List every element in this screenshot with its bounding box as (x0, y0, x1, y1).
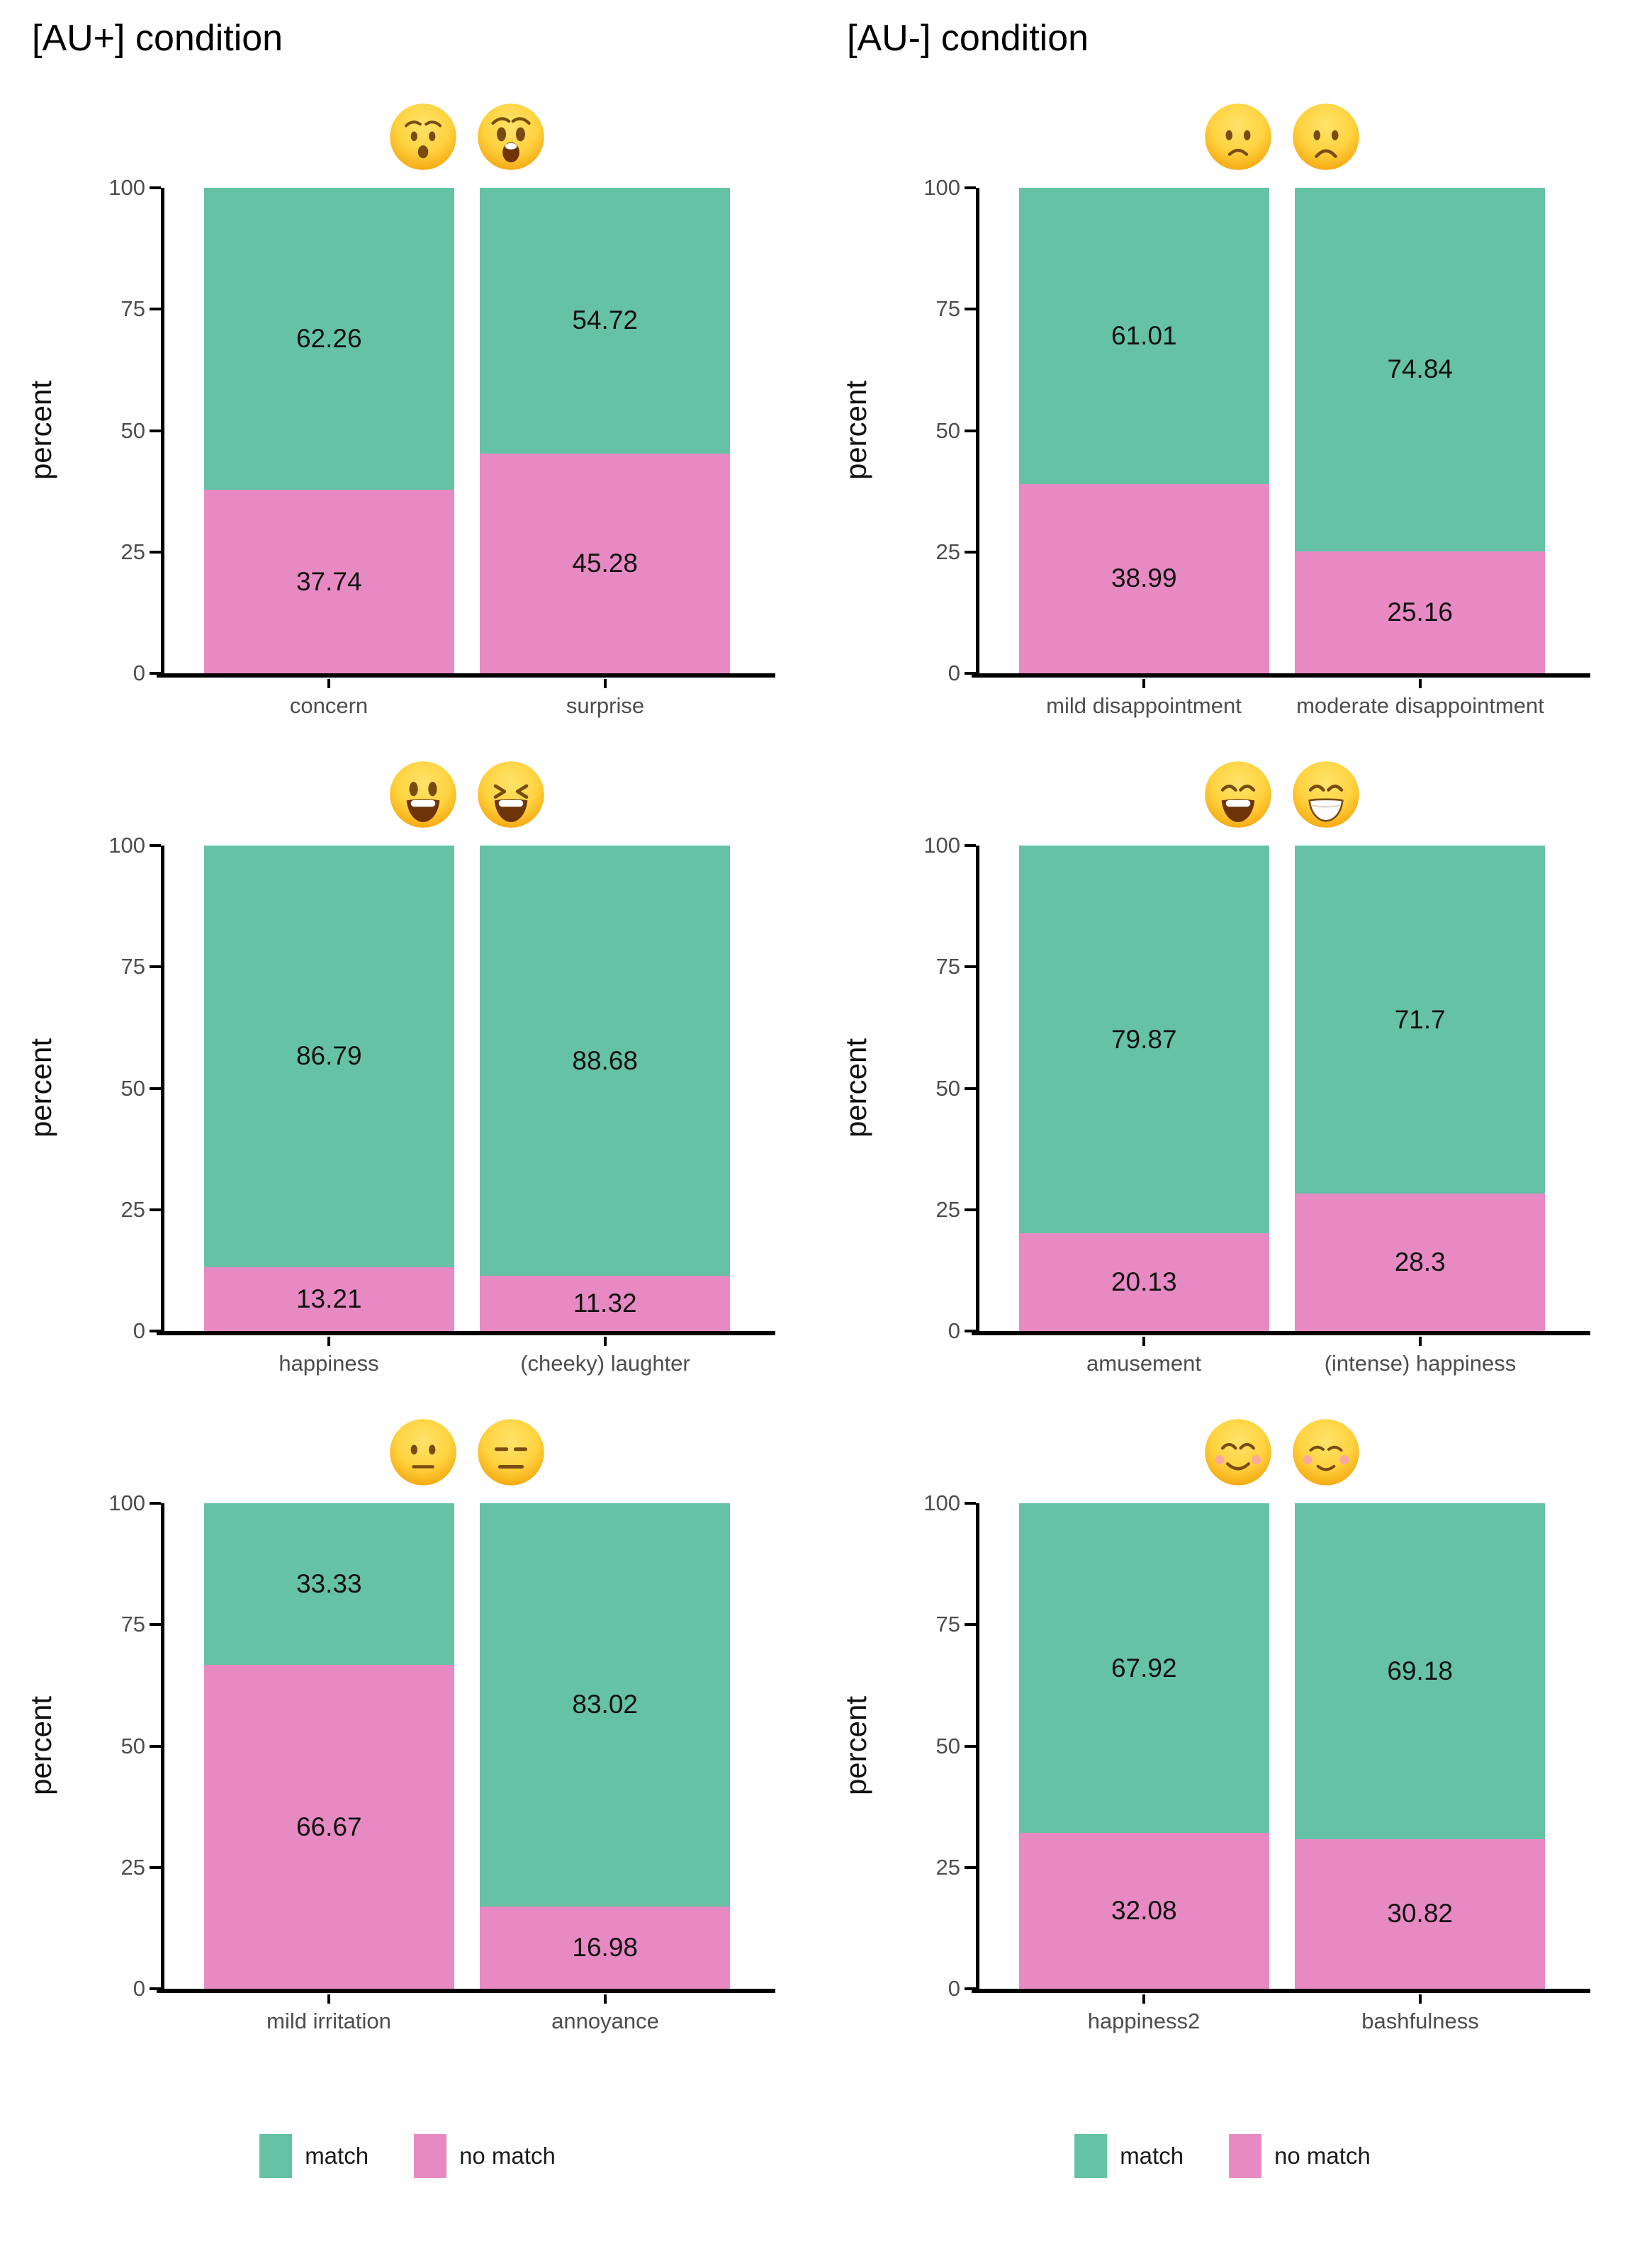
y-tick-label: 75 (904, 1612, 960, 1637)
y-tick-mark (965, 186, 976, 189)
bar-value-label: 83.02 (572, 1690, 638, 1719)
panel-happiness2-bashfulness: percent 100 75 50 25 0 67.92 32.08 69.18… (815, 1400, 1630, 2060)
y-tick-label: 50 (89, 1734, 145, 1759)
y-tick-label: 0 (89, 1318, 145, 1344)
y-tick-label: 100 (89, 1491, 145, 1516)
stacked-bar: 54.72 45.28 (480, 188, 730, 673)
y-tick-mark (965, 965, 976, 968)
bar-value-label: 61.01 (1111, 321, 1177, 351)
bar-value-label: 13.21 (296, 1284, 362, 1314)
figure: [AU+] condition [AU-] condition percent … (0, 0, 1630, 2268)
y-tick: 75 (904, 1612, 976, 1637)
emoji-astonished-face-icon (475, 101, 547, 173)
x-tick-mark (1142, 1994, 1145, 2004)
emoji-grinning-squinting-face-icon (475, 758, 547, 831)
y-axis-ticks: 100 75 50 25 0 (85, 846, 161, 1331)
y-tick-label: 50 (89, 418, 145, 444)
emoji-pair (979, 754, 1585, 835)
y-tick: 75 (89, 296, 161, 322)
bar-segment-no-match: 30.82 (1295, 1839, 1545, 1989)
y-tick: 50 (89, 1734, 161, 1759)
panel-concern-surprise: percent 100 75 50 25 0 62.26 37.74 54.72… (0, 85, 815, 744)
y-tick-label: 75 (904, 296, 960, 322)
bar-segment-match: 74.84 (1295, 188, 1545, 551)
y-axis-ticks: 100 75 50 25 0 (85, 1503, 161, 1989)
bar-value-label: 66.67 (296, 1812, 362, 1842)
y-axis-ticks: 100 75 50 25 0 (900, 1503, 976, 1989)
y-tick: 50 (89, 1076, 161, 1101)
bar-segment-match: 54.72 (480, 188, 730, 454)
y-tick: 75 (904, 954, 976, 979)
bar-segment-no-match: 16.98 (480, 1907, 730, 1989)
emoji-pair (979, 1412, 1585, 1493)
bar-value-label: 28.3 (1395, 1247, 1446, 1277)
y-tick: 25 (904, 1197, 976, 1223)
y-tick: 100 (89, 1491, 161, 1516)
y-tick-mark (150, 308, 161, 310)
y-tick: 50 (904, 1076, 976, 1101)
x-tick-mark (1419, 1337, 1422, 1346)
y-tick-mark (965, 551, 976, 554)
bar-value-label: 88.68 (572, 1046, 638, 1076)
panel-irritation-annoyance: percent 100 75 50 25 0 33.33 66.67 83.02… (0, 1400, 815, 2060)
emoji-pair (979, 96, 1585, 177)
bar-segment-match: 86.79 (204, 846, 454, 1267)
y-tick: 100 (904, 175, 976, 201)
y-tick-label: 25 (904, 1197, 960, 1223)
y-tick-label: 100 (89, 175, 145, 201)
panel-amusement-happiness: percent 100 75 50 25 0 79.87 20.13 71.7 … (815, 743, 1630, 1402)
bar-segment-match: 71.7 (1295, 846, 1545, 1194)
y-tick: 100 (904, 833, 976, 858)
y-tick-label: 75 (89, 296, 145, 322)
bar-value-label: 25.16 (1387, 597, 1453, 627)
y-tick-label: 50 (904, 1734, 960, 1759)
bar-value-label: 45.28 (572, 549, 638, 578)
bar-value-label: 71.7 (1395, 1005, 1446, 1035)
bar-value-label: 38.99 (1111, 563, 1177, 593)
y-tick-mark (150, 844, 161, 847)
legend-left: match no match (0, 2128, 815, 2184)
x-axis-line (972, 1331, 1590, 1335)
bar-segment-no-match: 13.21 (204, 1267, 454, 1331)
stacked-bar: 61.01 38.99 (1019, 188, 1269, 673)
y-tick: 0 (904, 1976, 976, 2002)
y-tick: 100 (89, 833, 161, 858)
emoji-neutral-face-icon (387, 1416, 459, 1488)
stacked-bar: 67.92 32.08 (1019, 1503, 1269, 1989)
x-axis-line (972, 1989, 1590, 1993)
stacked-bar: 88.68 11.32 (480, 846, 730, 1331)
y-tick-label: 25 (89, 1197, 145, 1223)
y-tick-mark (150, 430, 161, 432)
legend-key-no-match (414, 2134, 446, 2178)
x-category-label: surprise (393, 693, 818, 719)
bar-segment-match: 67.92 (1019, 1503, 1269, 1833)
stacked-bar: 74.84 25.16 (1295, 188, 1545, 673)
y-tick-label: 75 (904, 954, 960, 979)
bar-segment-no-match: 25.16 (1295, 551, 1545, 673)
y-tick-mark (965, 1502, 976, 1505)
x-tick-mark (327, 1994, 330, 2004)
bar-value-label: 20.13 (1111, 1267, 1177, 1297)
y-tick-label: 50 (89, 1076, 145, 1101)
y-tick: 100 (904, 1491, 976, 1516)
x-category-label: moderate disappointment (1208, 693, 1630, 719)
bar-value-label: 62.26 (296, 324, 362, 354)
legend-key-match (259, 2134, 292, 2178)
bar-segment-match: 83.02 (480, 1503, 730, 1907)
bar-segment-no-match: 38.99 (1019, 484, 1269, 673)
y-tick-mark (965, 844, 976, 847)
y-tick: 50 (904, 1734, 976, 1759)
y-tick-label: 75 (89, 1612, 145, 1637)
y-tick: 25 (904, 1855, 976, 1880)
y-tick-mark (965, 430, 976, 432)
stacked-bar: 71.7 28.3 (1295, 846, 1545, 1331)
y-tick: 0 (904, 661, 976, 686)
emoji-relaxed-smiling-face-icon (1290, 1416, 1362, 1488)
emoji-pair (164, 96, 770, 177)
emoji-pair (164, 754, 770, 835)
y-tick-mark (965, 1623, 976, 1626)
y-axis-ticks: 100 75 50 25 0 (900, 846, 976, 1331)
y-tick-mark (150, 1745, 161, 1748)
bar-value-label: 86.79 (296, 1041, 362, 1071)
x-tick-mark (604, 1994, 607, 2004)
bar-value-label: 67.92 (1111, 1654, 1177, 1683)
y-tick: 75 (89, 1612, 161, 1637)
x-category-label: annoyance (393, 2009, 818, 2034)
bar-segment-no-match: 32.08 (1019, 1833, 1269, 1989)
emoji-slightly-frowning-face-icon (1202, 101, 1274, 173)
plot-area: 33.33 66.67 83.02 16.98 (164, 1503, 770, 1989)
y-tick: 25 (89, 539, 161, 565)
x-axis-line (157, 1989, 775, 1993)
y-tick-mark (965, 308, 976, 310)
emoji-frowning-face-icon (1290, 101, 1362, 173)
panel-disappointment: percent 100 75 50 25 0 61.01 38.99 74.84… (815, 85, 1630, 744)
bar-value-label: 33.33 (296, 1569, 362, 1599)
stacked-bar: 33.33 66.67 (204, 1503, 454, 1989)
x-category-label: bashfulness (1208, 2009, 1630, 2034)
y-tick-mark (150, 1502, 161, 1505)
x-tick-mark (327, 679, 330, 688)
plot-area: 67.92 32.08 69.18 30.82 (979, 1503, 1585, 1989)
y-tick-label: 50 (904, 1076, 960, 1101)
y-tick-label: 100 (904, 833, 960, 858)
y-tick-label: 100 (89, 833, 145, 858)
stacked-bar: 62.26 37.74 (204, 188, 454, 673)
x-axis-line (972, 673, 1590, 678)
y-tick-mark (965, 1745, 976, 1748)
emoji-expressionless-face-icon (475, 1416, 547, 1488)
y-tick-label: 75 (89, 954, 145, 979)
y-tick-mark (150, 186, 161, 189)
y-tick: 25 (904, 539, 976, 565)
y-tick-label: 0 (904, 1318, 960, 1344)
bar-segment-no-match: 45.28 (480, 454, 730, 673)
y-tick-mark (150, 1866, 161, 1869)
y-tick: 25 (89, 1197, 161, 1223)
bar-value-label: 32.08 (1111, 1896, 1177, 1926)
bar-segment-no-match: 66.67 (204, 1665, 454, 1989)
y-tick-label: 0 (89, 661, 145, 686)
y-tick-label: 25 (89, 539, 145, 565)
y-axis-title: percent (24, 1696, 58, 1795)
bar-segment-match: 88.68 (480, 846, 730, 1276)
emoji-beaming-face-smiling-eyes-icon (1290, 758, 1362, 831)
bar-value-label: 79.87 (1111, 1025, 1177, 1055)
y-tick-mark (150, 1208, 161, 1211)
plot-area: 61.01 38.99 74.84 25.16 (979, 188, 1585, 673)
bar-segment-match: 79.87 (1019, 846, 1269, 1233)
y-tick-mark (965, 1866, 976, 1869)
x-tick-mark (604, 1337, 607, 1346)
left-column-title: [AU+] condition (32, 17, 283, 60)
bar-value-label: 54.72 (572, 305, 638, 335)
y-tick-mark (150, 1087, 161, 1090)
emoji-pair (164, 1412, 770, 1493)
plot-area: 62.26 37.74 54.72 45.28 (164, 188, 770, 673)
bar-value-label: 16.98 (572, 1933, 638, 1963)
y-axis-title: percent (839, 381, 873, 480)
panel-happiness-laughter: percent 100 75 50 25 0 86.79 13.21 88.68… (0, 743, 815, 1402)
stacked-bar: 83.02 16.98 (480, 1503, 730, 1989)
y-tick: 50 (89, 418, 161, 444)
y-tick: 75 (89, 954, 161, 979)
legend-label-match: match (1120, 2143, 1184, 2169)
y-tick-label: 0 (89, 1976, 145, 2002)
bar-value-label: 11.32 (573, 1289, 637, 1318)
y-tick: 75 (904, 296, 976, 322)
x-category-label: (cheeky) laughter (393, 1351, 818, 1376)
bar-segment-no-match: 20.13 (1019, 1233, 1269, 1331)
bar-segment-no-match: 37.74 (204, 490, 454, 673)
legend-label-no-match: no match (459, 2143, 556, 2169)
y-tick-label: 25 (904, 1855, 960, 1880)
y-axis-ticks: 100 75 50 25 0 (900, 188, 976, 673)
y-tick: 0 (89, 1976, 161, 2002)
y-tick: 25 (89, 1855, 161, 1880)
y-tick-label: 50 (904, 418, 960, 444)
y-tick: 50 (904, 418, 976, 444)
bar-segment-match: 33.33 (204, 1503, 454, 1665)
y-tick-label: 0 (904, 661, 960, 686)
emoji-smiling-face-smiling-eyes-icon (1202, 1416, 1274, 1488)
stacked-bar: 86.79 13.21 (204, 846, 454, 1331)
emoji-grinning-face-big-eyes-icon (387, 758, 459, 831)
y-tick-label: 25 (904, 539, 960, 565)
y-tick: 0 (904, 1318, 976, 1344)
x-axis-line (157, 673, 775, 678)
plot-area: 79.87 20.13 71.7 28.3 (979, 846, 1585, 1331)
bar-segment-no-match: 28.3 (1295, 1194, 1545, 1331)
y-tick-label: 25 (89, 1855, 145, 1880)
x-tick-mark (604, 679, 607, 688)
y-axis-title: percent (839, 1038, 873, 1138)
legend-key-no-match (1229, 2134, 1261, 2178)
legend-label-no-match: no match (1274, 2143, 1371, 2169)
y-tick: 0 (89, 1318, 161, 1344)
x-axis-line (157, 1331, 775, 1335)
legend-key-match (1074, 2134, 1107, 2178)
y-axis-ticks: 100 75 50 25 0 (85, 188, 161, 673)
legend-label-match: match (305, 2143, 369, 2169)
y-axis-title: percent (24, 1038, 58, 1138)
y-tick-mark (150, 1623, 161, 1626)
bar-segment-no-match: 11.32 (480, 1276, 730, 1331)
y-tick: 100 (89, 175, 161, 201)
x-tick-mark (1142, 679, 1145, 688)
y-tick-label: 100 (904, 1491, 960, 1516)
plot-area: 86.79 13.21 88.68 11.32 (164, 846, 770, 1331)
y-axis-title: percent (24, 381, 58, 480)
y-tick-label: 0 (904, 1976, 960, 2002)
x-tick-mark (1142, 1337, 1145, 1346)
stacked-bar: 69.18 30.82 (1295, 1503, 1545, 1989)
bar-value-label: 74.84 (1387, 354, 1453, 384)
bar-value-label: 69.18 (1387, 1656, 1453, 1686)
bar-value-label: 30.82 (1387, 1899, 1453, 1929)
emoji-grinning-face-smiling-eyes-icon (1202, 758, 1274, 831)
x-tick-mark (1419, 1994, 1422, 2004)
emoji-hushed-face-icon (387, 101, 459, 173)
y-tick-label: 100 (904, 175, 960, 201)
bar-segment-match: 69.18 (1295, 1503, 1545, 1839)
y-tick-mark (965, 1208, 976, 1211)
bar-segment-match: 61.01 (1019, 188, 1269, 484)
y-tick-mark (150, 965, 161, 968)
y-axis-title: percent (839, 1696, 873, 1795)
y-tick-mark (150, 551, 161, 554)
legend-right: match no match (815, 2128, 1630, 2184)
x-tick-mark (327, 1337, 330, 1346)
bar-segment-match: 62.26 (204, 188, 454, 490)
y-tick-mark (965, 1087, 976, 1090)
x-category-label: (intense) happiness (1208, 1351, 1630, 1376)
x-tick-mark (1419, 679, 1422, 688)
stacked-bar: 79.87 20.13 (1019, 846, 1269, 1331)
y-tick: 0 (89, 661, 161, 686)
bar-value-label: 37.74 (296, 567, 362, 597)
right-column-title: [AU-] condition (847, 17, 1089, 60)
